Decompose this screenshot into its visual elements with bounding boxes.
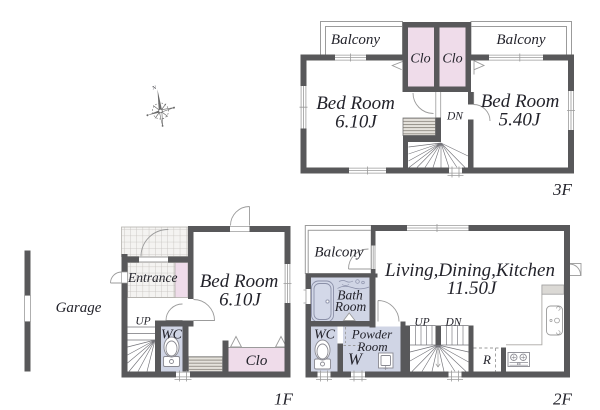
svg-text:DN: DN	[445, 317, 463, 329]
svg-text:Clo: Clo	[246, 353, 268, 369]
svg-text:Balcony: Balcony	[331, 32, 380, 48]
svg-text:UP: UP	[414, 317, 429, 329]
svg-text:Clo: Clo	[410, 52, 430, 67]
svg-text:11.50J: 11.50J	[447, 278, 498, 299]
svg-text:3F: 3F	[552, 180, 573, 199]
svg-text:6.10J: 6.10J	[219, 290, 262, 311]
svg-text:Balcony: Balcony	[314, 245, 363, 261]
svg-text:2F: 2F	[553, 390, 573, 409]
svg-text:UP: UP	[135, 316, 150, 328]
svg-text:6.10J: 6.10J	[335, 112, 378, 133]
svg-text:R: R	[482, 352, 491, 367]
svg-text:W: W	[348, 350, 364, 369]
svg-text:WC: WC	[161, 328, 183, 343]
svg-text:DN: DN	[446, 111, 464, 123]
svg-text:Clo: Clo	[442, 52, 462, 67]
svg-text:Room: Room	[334, 299, 367, 314]
svg-text:WC: WC	[314, 328, 336, 343]
svg-text:Garage: Garage	[56, 300, 102, 316]
svg-text:5.40J: 5.40J	[499, 110, 542, 131]
svg-text:Entrance: Entrance	[127, 270, 178, 285]
svg-text:Balcony: Balcony	[496, 32, 545, 48]
svg-text:1F: 1F	[274, 390, 294, 409]
